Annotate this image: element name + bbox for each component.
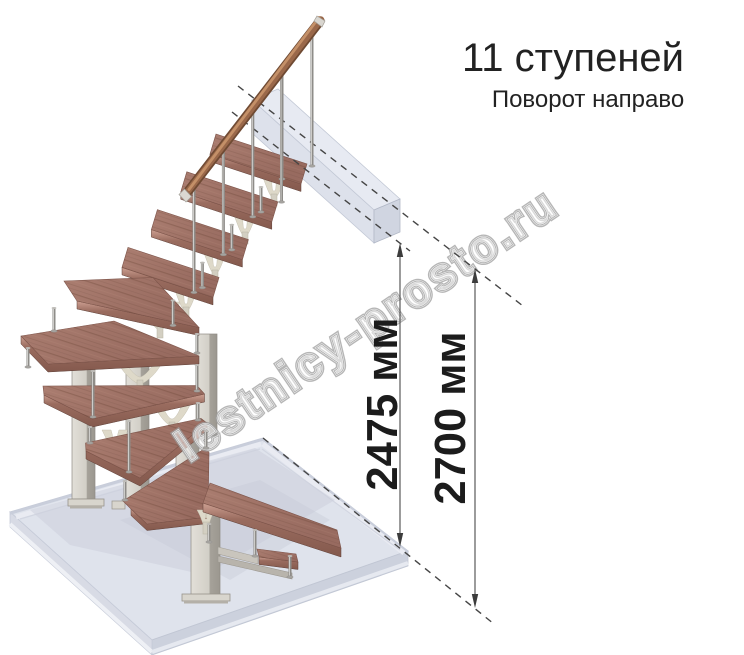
svg-text:2700 мм: 2700 мм — [427, 331, 475, 504]
svg-text:Поворот направо: Поворот направо — [492, 86, 684, 113]
svg-text:2475 мм: 2475 мм — [359, 317, 407, 490]
svg-text:11 ступеней: 11 ступеней — [462, 36, 684, 80]
